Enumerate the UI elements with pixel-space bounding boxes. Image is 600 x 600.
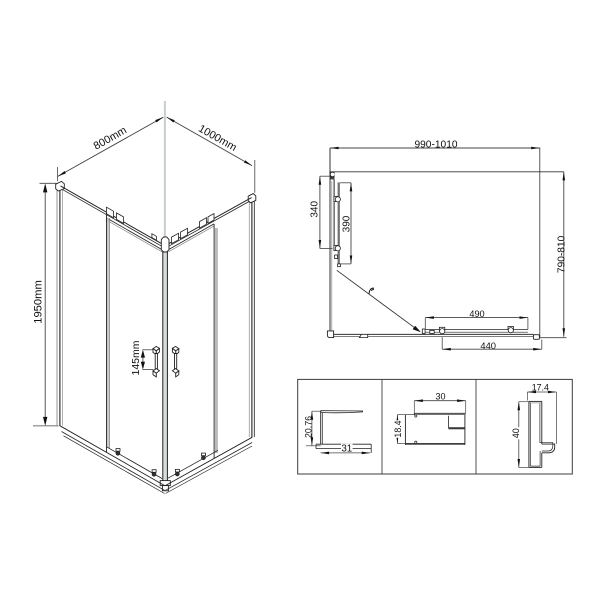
svg-text:340: 340 xyxy=(310,201,321,218)
svg-text:440: 440 xyxy=(480,340,496,351)
svg-text:490: 490 xyxy=(469,309,484,319)
svg-text:145mm: 145mm xyxy=(130,340,142,375)
svg-text:790-810: 790-810 xyxy=(557,235,568,273)
svg-text:1950mm: 1950mm xyxy=(33,280,45,324)
svg-text:30: 30 xyxy=(435,391,445,401)
svg-text:390: 390 xyxy=(342,215,353,232)
svg-text:31: 31 xyxy=(341,444,352,455)
svg-text:18.4: 18.4 xyxy=(393,420,403,437)
svg-text:17.4: 17.4 xyxy=(532,383,549,393)
svg-text:20.76: 20.76 xyxy=(303,416,313,438)
svg-text:40: 40 xyxy=(511,428,521,438)
svg-text:990-1010: 990-1010 xyxy=(414,140,457,151)
